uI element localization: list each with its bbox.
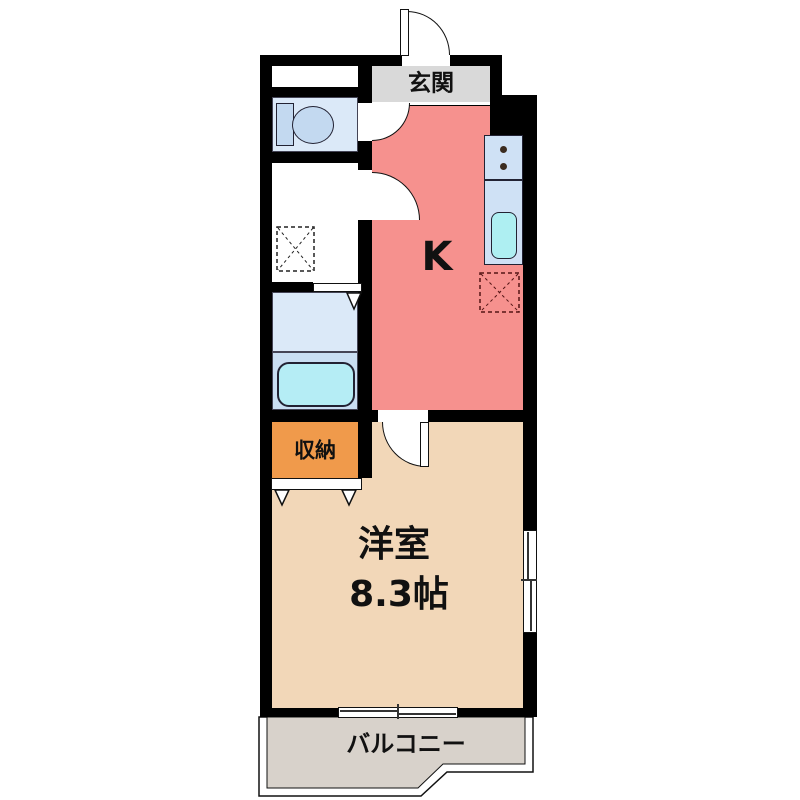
balcony-window-rail (398, 713, 456, 715)
balcony-label: バルコニー (346, 732, 466, 756)
room-door-leaf-icon (420, 422, 429, 467)
right-window-tick (521, 579, 537, 581)
western-room-size-label: 8.3帖 (349, 577, 449, 613)
washroom-door-gap (358, 170, 372, 220)
wall (458, 708, 537, 717)
wall (358, 422, 372, 478)
storage-label: 収納 (294, 441, 336, 462)
wall (260, 55, 402, 66)
bathtub-icon (277, 362, 355, 407)
wall (260, 708, 338, 717)
wall (260, 282, 313, 292)
bathroom-door-triangle-icon (345, 292, 363, 311)
right-window-rail (527, 532, 529, 581)
wall (490, 95, 537, 137)
washing-machine-space-icon (276, 226, 315, 272)
stove-burner-icon (500, 163, 507, 170)
toilet-door-gap (358, 103, 372, 141)
bathroom-door-icon (313, 283, 362, 292)
entrance-door-leaf-icon (400, 9, 409, 56)
balcony-window-rail (340, 710, 398, 712)
floorplan-canvas: 玄関 K 収納 洋室 8.3帖 バルコニー (0, 0, 800, 800)
toilet-bowl-icon (292, 106, 334, 144)
wall (523, 633, 537, 717)
wall (266, 87, 372, 97)
stove-burner-icon (500, 146, 507, 153)
entrance-door-gap (402, 55, 450, 66)
top-white-space (272, 66, 358, 87)
entrance-label: 玄関 (408, 73, 454, 96)
storage-door-triangle-icon (273, 489, 291, 507)
storage-door-triangle-icon (340, 489, 358, 507)
room-door-gap (378, 410, 428, 422)
balcony-window-tick (397, 704, 399, 719)
wall (266, 152, 372, 163)
entrance-door-arc-icon (407, 11, 450, 55)
refrigerator-space-icon (479, 272, 520, 313)
counter-divider (484, 179, 523, 181)
wall (523, 137, 537, 530)
western-room-label: 洋室 (358, 527, 430, 563)
right-window-rail (530, 580, 532, 631)
kitchen-label: K (422, 237, 453, 277)
sink-icon (491, 212, 517, 259)
